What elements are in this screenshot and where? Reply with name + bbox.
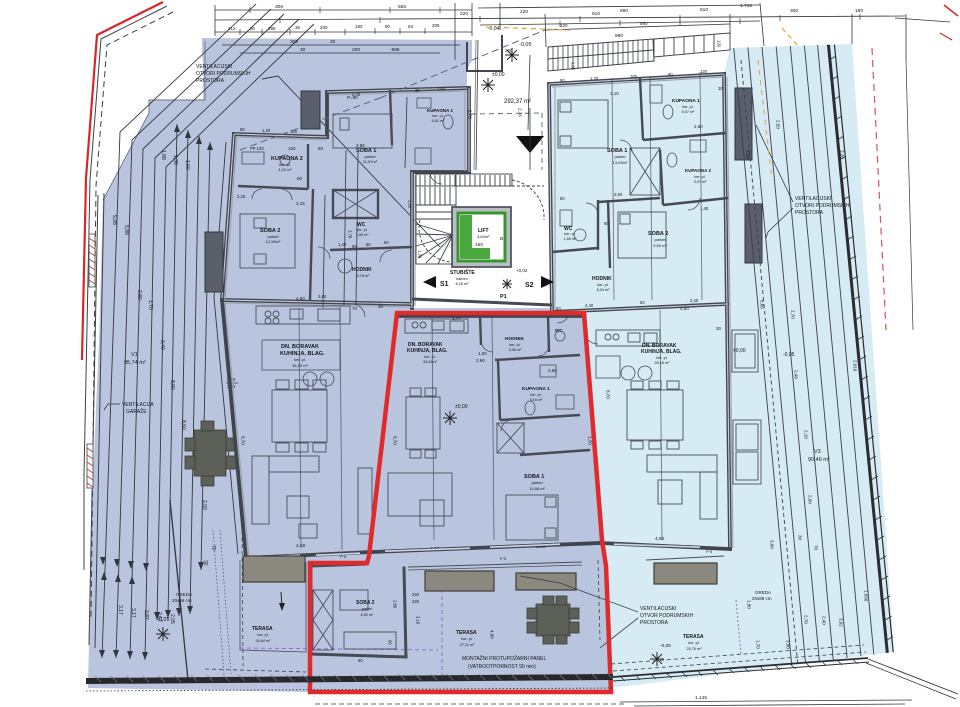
svg-text:4,50: 4,50 xyxy=(655,536,665,542)
svg-text:5,76 m²: 5,76 m² xyxy=(357,274,371,278)
svg-text:20x66 cm: 20x66 cm xyxy=(172,598,192,603)
svg-text:180: 180 xyxy=(355,24,363,29)
svg-text:2,80: 2,80 xyxy=(393,600,398,609)
svg-text:90: 90 xyxy=(352,244,357,249)
svg-text:412: 412 xyxy=(228,26,236,31)
svg-text:35: 35 xyxy=(295,25,301,30)
svg-text:PROSTORA: PROSTORA xyxy=(640,620,669,626)
svg-text:60: 60 xyxy=(388,640,393,645)
svg-text:2,40: 2,40 xyxy=(352,92,361,97)
svg-text:34,84 m²: 34,84 m² xyxy=(256,639,272,643)
svg-text:S1: S1 xyxy=(440,281,449,288)
svg-text:2,60: 2,60 xyxy=(318,294,327,299)
svg-text:300: 300 xyxy=(790,8,798,14)
svg-text:±0,00: ±0,00 xyxy=(455,404,468,410)
svg-text:1,80: 1,80 xyxy=(747,600,752,609)
svg-text:1,85 m²: 1,85 m² xyxy=(356,233,370,237)
svg-text:1,70: 1,70 xyxy=(147,300,153,310)
svg-text:KUHINJA, BLAG.: KUHINJA, BLAG. xyxy=(407,348,448,354)
svg-text:180: 180 xyxy=(855,8,863,14)
svg-text:HODNIK: HODNIK xyxy=(505,336,524,342)
svg-text:3,17: 3,17 xyxy=(117,605,123,615)
svg-text:TERASA: TERASA xyxy=(252,626,273,632)
svg-text:2,60: 2,60 xyxy=(614,192,623,197)
svg-text:5,07 m²: 5,07 m² xyxy=(682,110,696,114)
svg-text:2,00: 2,00 xyxy=(808,495,813,504)
svg-text:8,60: 8,60 xyxy=(760,300,765,309)
svg-text:80: 80 xyxy=(385,24,391,29)
svg-text:2,76: 2,76 xyxy=(518,108,523,117)
svg-text:6,05: 6,05 xyxy=(571,62,576,71)
svg-text:3,96 m²: 3,96 m² xyxy=(509,348,523,352)
svg-text:VENTILACIJSKI: VENTILACIJSKI xyxy=(196,64,232,70)
svg-text:V3: V3 xyxy=(814,449,821,455)
svg-text:2,40: 2,40 xyxy=(585,303,594,308)
svg-text:8,52 m²: 8,52 m² xyxy=(361,613,375,617)
svg-text:1,70: 1,70 xyxy=(756,640,761,649)
svg-text:30: 30 xyxy=(330,39,336,45)
svg-text:8,70: 8,70 xyxy=(606,390,611,399)
svg-text:VENTILACIJSKI: VENTILACIJSKI xyxy=(640,606,676,612)
svg-text:30: 30 xyxy=(718,86,724,91)
svg-text:2,80: 2,80 xyxy=(136,290,142,300)
svg-text:4,50: 4,50 xyxy=(296,296,305,301)
svg-text:2,50: 2,50 xyxy=(776,120,781,129)
svg-text:95,74 m²: 95,74 m² xyxy=(124,360,146,366)
svg-text:ker. pl.: ker. pl. xyxy=(564,232,575,236)
svg-text:1,65 m²: 1,65 m² xyxy=(564,237,578,241)
svg-text:3,64m²: 3,64m² xyxy=(477,234,490,239)
svg-text:20x88 cm: 20x88 cm xyxy=(752,596,772,601)
svg-text:1,60: 1,60 xyxy=(437,86,446,91)
svg-text:ker. pl.: ker. pl. xyxy=(509,343,520,347)
svg-text:25,76 m²: 25,76 m² xyxy=(687,647,703,651)
svg-text:80: 80 xyxy=(250,26,256,31)
svg-text:4,50: 4,50 xyxy=(680,306,689,311)
svg-text:2,05: 2,05 xyxy=(169,614,175,624)
svg-text:2,60: 2,60 xyxy=(548,368,557,373)
svg-text:ker. pl.: ker. pl. xyxy=(424,355,435,359)
svg-text:30: 30 xyxy=(378,304,384,309)
svg-text:KUPAONA 1: KUPAONA 1 xyxy=(522,386,550,392)
svg-text:1,70: 1,70 xyxy=(791,310,796,319)
svg-text:SOBA 2: SOBA 2 xyxy=(356,600,375,606)
svg-text:70: 70 xyxy=(210,545,216,551)
svg-text:parket: parket xyxy=(614,154,626,159)
svg-text:36,15 m²: 36,15 m² xyxy=(292,363,308,368)
svg-text:30: 30 xyxy=(716,326,722,331)
svg-text:186: 186 xyxy=(268,26,276,31)
svg-text:50: 50 xyxy=(640,300,645,305)
svg-text:GREDA: GREDA xyxy=(755,590,771,595)
svg-text:610: 610 xyxy=(592,11,600,17)
svg-text:HODNIK: HODNIK xyxy=(592,276,612,282)
svg-text:80: 80 xyxy=(297,176,303,181)
svg-text:kor. pl.: kor. pl. xyxy=(461,637,472,641)
svg-text:2,00: 2,00 xyxy=(201,500,207,510)
svg-text:P·5: P·5 xyxy=(340,554,347,559)
svg-text:980: 980 xyxy=(615,33,623,39)
svg-text:2,20: 2,20 xyxy=(408,200,413,209)
svg-text:ker. pl.: ker. pl. xyxy=(432,114,443,118)
svg-text:S2: S2 xyxy=(525,282,534,289)
svg-text:5,98: 5,98 xyxy=(111,215,117,225)
svg-text:3,02: 3,02 xyxy=(839,618,844,627)
svg-text:(VATROOTPORNOST 90 min): (VATROOTPORNOST 90 min) xyxy=(468,664,536,670)
svg-text:240: 240 xyxy=(412,592,420,597)
svg-text:60: 60 xyxy=(366,242,371,247)
svg-text:292,37 m²: 292,37 m² xyxy=(504,99,531,105)
svg-text:70: 70 xyxy=(814,545,819,551)
svg-text:KUPAONA 1: KUPAONA 1 xyxy=(427,108,453,113)
svg-text:160: 160 xyxy=(288,146,296,151)
svg-text:PROSTORA: PROSTORA xyxy=(795,210,824,216)
svg-text:parket: parket xyxy=(654,237,666,242)
svg-text:-0,05: -0,05 xyxy=(157,617,170,623)
svg-text:DN. BORAVAK: DN. BORAVAK xyxy=(281,344,319,350)
svg-text:30: 30 xyxy=(202,560,208,566)
svg-text:STUBIŠTE: STUBIŠTE xyxy=(450,268,475,276)
svg-text:50: 50 xyxy=(384,240,389,245)
svg-text:B: B xyxy=(500,236,503,242)
svg-text:±0,00: ±0,00 xyxy=(492,72,505,78)
svg-text:220: 220 xyxy=(520,9,528,15)
svg-text:kamen: kamen xyxy=(456,277,467,281)
svg-text:2,87: 2,87 xyxy=(143,610,149,620)
svg-text:PP 120: PP 120 xyxy=(250,146,264,151)
svg-text:14,88 m²: 14,88 m² xyxy=(529,486,545,491)
svg-text:OTVORI PODRUMSKIH: OTVORI PODRUMSKIH xyxy=(196,71,251,77)
svg-text:6,04 m²: 6,04 m² xyxy=(597,288,611,292)
svg-text:P1: P1 xyxy=(500,294,507,300)
svg-text:90: 90 xyxy=(240,127,245,132)
svg-text:VENTILACIJSKI: VENTILACIJSKI xyxy=(795,196,831,202)
svg-text:+0,02: +0,02 xyxy=(516,268,528,273)
svg-text:3,80: 3,80 xyxy=(786,640,791,649)
svg-text:2,40: 2,40 xyxy=(822,616,827,625)
svg-text:5,88: 5,88 xyxy=(123,225,129,235)
svg-text:TERASA: TERASA xyxy=(456,630,477,636)
svg-text:220: 220 xyxy=(460,11,468,17)
svg-text:1.718: 1.718 xyxy=(740,3,752,9)
svg-text:1,20: 1,20 xyxy=(590,76,599,81)
svg-text:30: 30 xyxy=(798,535,803,541)
svg-text:1,30: 1,30 xyxy=(172,155,178,165)
svg-text:2,85: 2,85 xyxy=(356,143,365,148)
svg-text:ker. pl.: ker. pl. xyxy=(294,357,306,362)
svg-text:2,40: 2,40 xyxy=(794,370,799,379)
svg-text:1.145: 1.145 xyxy=(695,695,707,701)
svg-text:80: 80 xyxy=(560,196,565,201)
svg-text:33,94m²: 33,94m² xyxy=(423,360,438,364)
svg-text:-0,05: -0,05 xyxy=(660,643,671,649)
svg-text:160: 160 xyxy=(475,242,483,248)
svg-text:165: 165 xyxy=(630,74,638,79)
svg-text:KUHINJA, BLAG.: KUHINJA, BLAG. xyxy=(641,349,682,355)
svg-text:63: 63 xyxy=(408,24,414,29)
svg-text:90: 90 xyxy=(668,72,673,77)
svg-text:610: 610 xyxy=(700,7,708,13)
svg-text:HODNIK: HODNIK xyxy=(352,267,372,273)
svg-text:590: 590 xyxy=(640,21,648,26)
svg-text:2,60: 2,60 xyxy=(476,358,485,363)
svg-text:KUPAONA 1: KUPAONA 1 xyxy=(672,98,700,104)
svg-text:3,15: 3,15 xyxy=(296,201,305,206)
svg-text:2,78: 2,78 xyxy=(468,110,473,119)
svg-text:6,16 m²: 6,16 m² xyxy=(456,282,470,286)
svg-text:9,59 m²: 9,59 m² xyxy=(653,243,667,248)
svg-text:1,77: 1,77 xyxy=(452,316,461,321)
svg-text:VENTILACIJA: VENTILACIJA xyxy=(122,402,154,408)
svg-text:8,60: 8,60 xyxy=(180,420,186,430)
svg-text:225: 225 xyxy=(412,599,420,604)
svg-text:2,10: 2,10 xyxy=(804,430,809,439)
svg-text:P·5: P·5 xyxy=(500,556,507,561)
svg-text:2.010: 2.010 xyxy=(853,360,858,372)
svg-text:ker. pl.: ker. pl. xyxy=(656,356,667,360)
svg-text:13,63m²: 13,63m² xyxy=(613,160,628,165)
svg-text:3,20: 3,20 xyxy=(840,150,845,159)
svg-text:2,60: 2,60 xyxy=(694,124,703,129)
svg-text:90: 90 xyxy=(560,78,565,83)
svg-text:3,20: 3,20 xyxy=(746,150,751,159)
svg-text:200: 200 xyxy=(320,25,328,30)
svg-text:3,78: 3,78 xyxy=(348,230,353,239)
svg-text:kor. pl.: kor. pl. xyxy=(688,641,699,645)
svg-text:1.680: 1.680 xyxy=(864,590,869,602)
svg-text:-0,05: -0,05 xyxy=(519,42,532,48)
svg-text:308: 308 xyxy=(275,4,283,10)
svg-text:3,17: 3,17 xyxy=(130,608,136,618)
svg-text:TERASA: TERASA xyxy=(683,634,704,640)
svg-text:P·5: P·5 xyxy=(706,549,713,554)
svg-text:ker. pl.: ker. pl. xyxy=(356,228,367,232)
svg-text:205: 205 xyxy=(432,23,440,28)
svg-text:ker. pl.: ker. pl. xyxy=(682,105,693,109)
svg-text:11,57m²: 11,57m² xyxy=(363,159,378,164)
svg-text:30: 30 xyxy=(300,47,306,53)
svg-text:ker. pl.: ker. pl. xyxy=(597,283,608,287)
svg-text:2,70: 2,70 xyxy=(804,615,809,624)
svg-text:-685: -685 xyxy=(390,47,400,53)
svg-text:±0,00: ±0,00 xyxy=(733,348,746,354)
svg-text:OTVORI PODRUMSKIH: OTVORI PODRUMSKIH xyxy=(795,203,850,209)
svg-text:5,61 m²: 5,61 m² xyxy=(432,119,446,123)
svg-text:2,40: 2,40 xyxy=(159,340,165,350)
svg-text:parket: parket xyxy=(531,480,543,485)
svg-text:3,10: 3,10 xyxy=(416,616,421,625)
svg-text:308: 308 xyxy=(290,39,298,45)
svg-text:3,97 m²: 3,97 m² xyxy=(694,180,708,184)
svg-text:1,60: 1,60 xyxy=(184,160,190,170)
svg-text:parket: parket xyxy=(362,607,373,611)
svg-text:ker. pl.: ker. pl. xyxy=(530,393,541,397)
svg-text:28,16 m²: 28,16 m² xyxy=(655,361,671,365)
svg-text:8,70: 8,70 xyxy=(393,436,398,445)
svg-text:690: 690 xyxy=(620,8,628,14)
svg-text:2,40: 2,40 xyxy=(690,298,699,303)
svg-text:MONTAŽNI PROTUPOŽARNI PANEL: MONTAŽNI PROTUPOŽARNI PANEL xyxy=(462,654,546,662)
svg-text:8,90: 8,90 xyxy=(169,380,175,390)
svg-text:120: 120 xyxy=(717,40,722,48)
svg-text:30: 30 xyxy=(415,88,420,93)
svg-text:27,11 m²: 27,11 m² xyxy=(460,643,475,647)
svg-text:3,00: 3,00 xyxy=(770,540,775,549)
svg-text:KUPAONA 2: KUPAONA 2 xyxy=(685,168,711,173)
svg-text:-0,05: -0,05 xyxy=(783,352,795,358)
svg-text:60: 60 xyxy=(556,306,561,311)
svg-text:1,00: 1,00 xyxy=(478,351,487,356)
svg-text:GARAŽE: GARAŽE xyxy=(126,407,147,415)
svg-text:4,00: 4,00 xyxy=(490,630,495,639)
svg-text:OTVOR PODRUMSKIH: OTVOR PODRUMSKIH xyxy=(640,613,693,619)
svg-text:1,40: 1,40 xyxy=(338,242,347,247)
svg-text:60: 60 xyxy=(604,221,609,226)
svg-text:1,20: 1,20 xyxy=(262,128,271,133)
svg-text:120: 120 xyxy=(700,69,708,74)
svg-text:70: 70 xyxy=(352,306,358,311)
svg-text:V1: V1 xyxy=(131,352,138,358)
svg-text:PROSTORA: PROSTORA xyxy=(196,78,225,84)
svg-text:ker. pl.: ker. pl. xyxy=(694,175,705,179)
svg-text:90,46 m²: 90,46 m² xyxy=(808,457,830,463)
svg-text:4,22 m²: 4,22 m² xyxy=(278,167,292,172)
svg-text:50: 50 xyxy=(318,146,324,151)
svg-text:8,70: 8,70 xyxy=(241,436,246,445)
svg-text:12,55m²: 12,55m² xyxy=(266,239,281,244)
svg-text:200: 200 xyxy=(352,47,360,53)
svg-text:60: 60 xyxy=(358,658,363,663)
svg-text:1,88: 1,88 xyxy=(160,150,166,160)
svg-text:GREDA: GREDA xyxy=(176,592,192,597)
svg-text:2,25: 2,25 xyxy=(237,194,246,199)
svg-text:kor. pl.: kor. pl. xyxy=(257,633,268,637)
svg-text:3,10: 3,10 xyxy=(610,91,619,96)
svg-text:555: 555 xyxy=(398,4,406,10)
